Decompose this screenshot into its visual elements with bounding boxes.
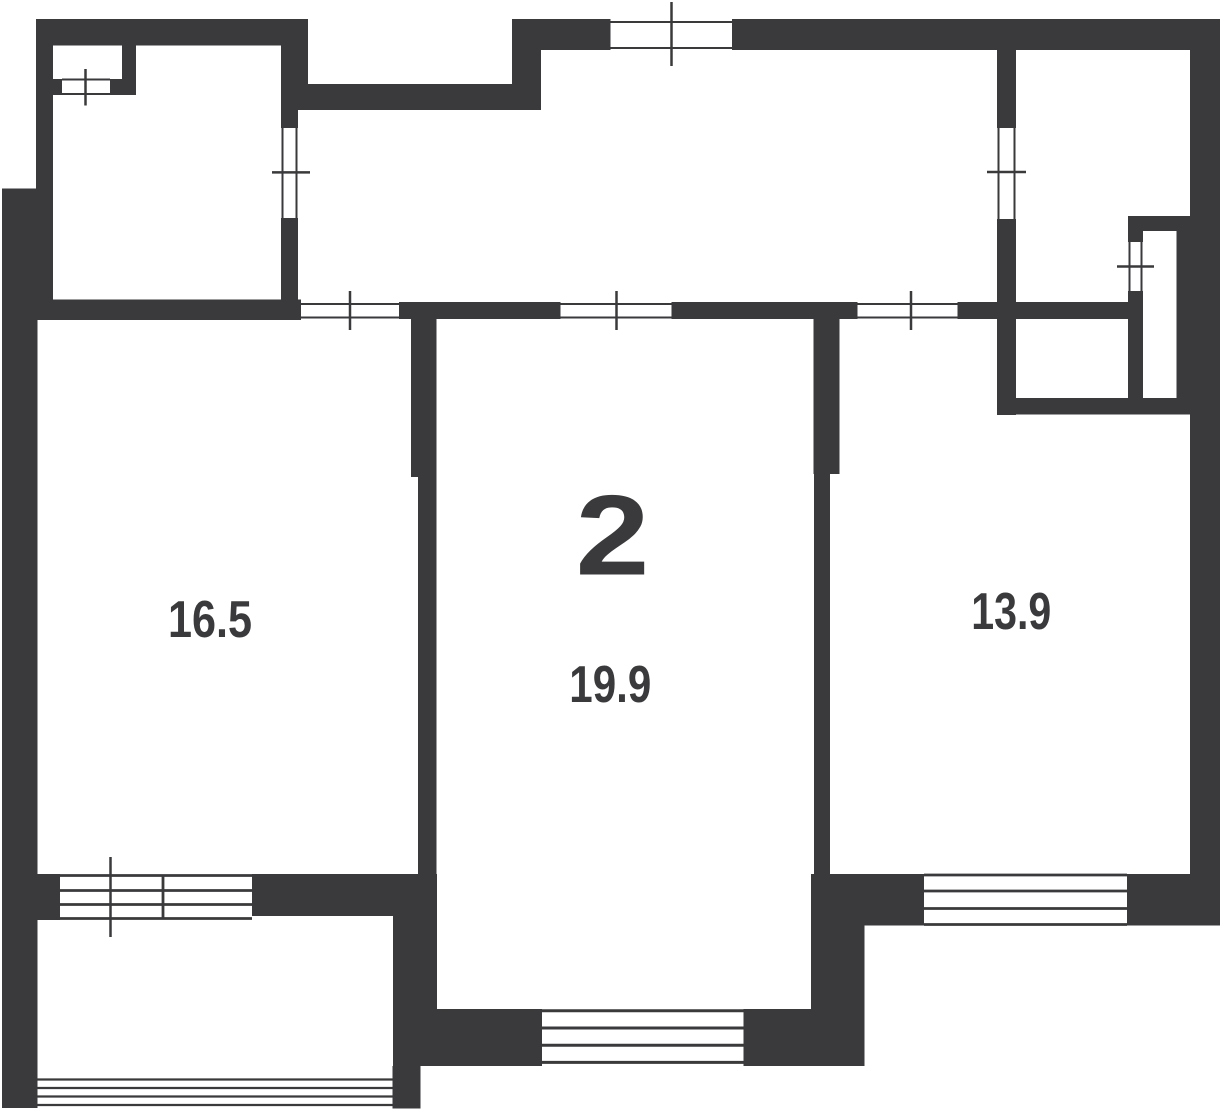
svg-text:13.9: 13.9 xyxy=(971,583,1051,641)
svg-text:2: 2 xyxy=(576,473,650,600)
svg-text:19.9: 19.9 xyxy=(569,656,651,714)
svg-text:16.5: 16.5 xyxy=(168,591,252,649)
